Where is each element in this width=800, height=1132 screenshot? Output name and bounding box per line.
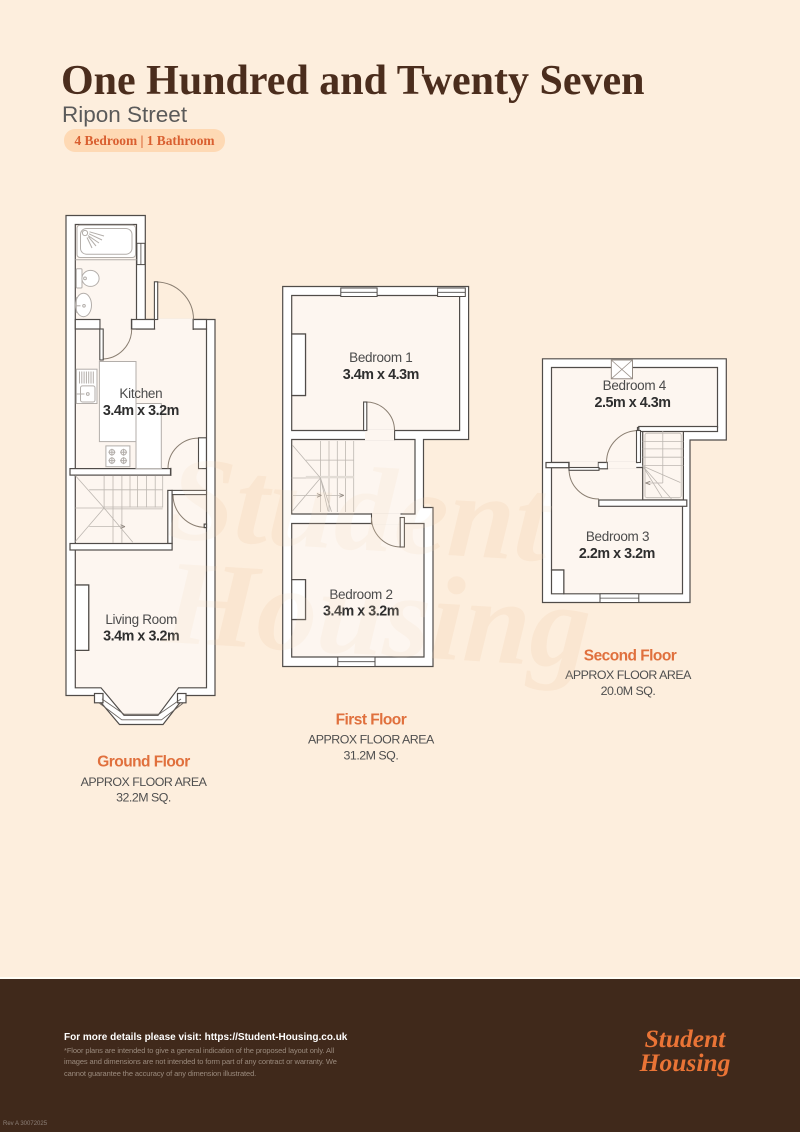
svg-text:2.5m x 4.3m: 2.5m x 4.3m: [594, 395, 670, 411]
svg-text:Second Floor: Second Floor: [584, 648, 677, 665]
svg-text:Bedroom 2: Bedroom 2: [329, 587, 392, 602]
svg-text:Kitchen: Kitchen: [119, 386, 162, 401]
svg-text:32.2M SQ.: 32.2M SQ.: [116, 791, 171, 805]
svg-text:3.4m x 3.2m: 3.4m x 3.2m: [103, 629, 179, 645]
svg-text:3.4m x 3.2m: 3.4m x 3.2m: [323, 604, 399, 620]
svg-text:3.4m x 3.2m: 3.4m x 3.2m: [103, 403, 179, 419]
svg-text:APPROX FLOOR AREA: APPROX FLOOR AREA: [81, 775, 208, 789]
svg-text:3.4m x 4.3m: 3.4m x 4.3m: [343, 367, 419, 383]
svg-text:2.2m x 3.2m: 2.2m x 3.2m: [579, 546, 655, 562]
svg-text:Bedroom 4: Bedroom 4: [603, 378, 667, 393]
svg-text:31.2M SQ.: 31.2M SQ.: [344, 749, 399, 763]
svg-text:APPROX FLOOR AREA: APPROX FLOOR AREA: [565, 668, 692, 682]
svg-text:Ground Floor: Ground Floor: [97, 754, 190, 771]
svg-text:Living Room: Living Room: [105, 612, 177, 627]
svg-text:First Floor: First Floor: [336, 712, 407, 729]
svg-text:20.0M SQ.: 20.0M SQ.: [601, 684, 656, 698]
svg-text:Bedroom 1: Bedroom 1: [349, 350, 412, 365]
svg-text:APPROX FLOOR AREA: APPROX FLOOR AREA: [308, 733, 435, 747]
svg-text:Bedroom 3: Bedroom 3: [586, 529, 649, 544]
